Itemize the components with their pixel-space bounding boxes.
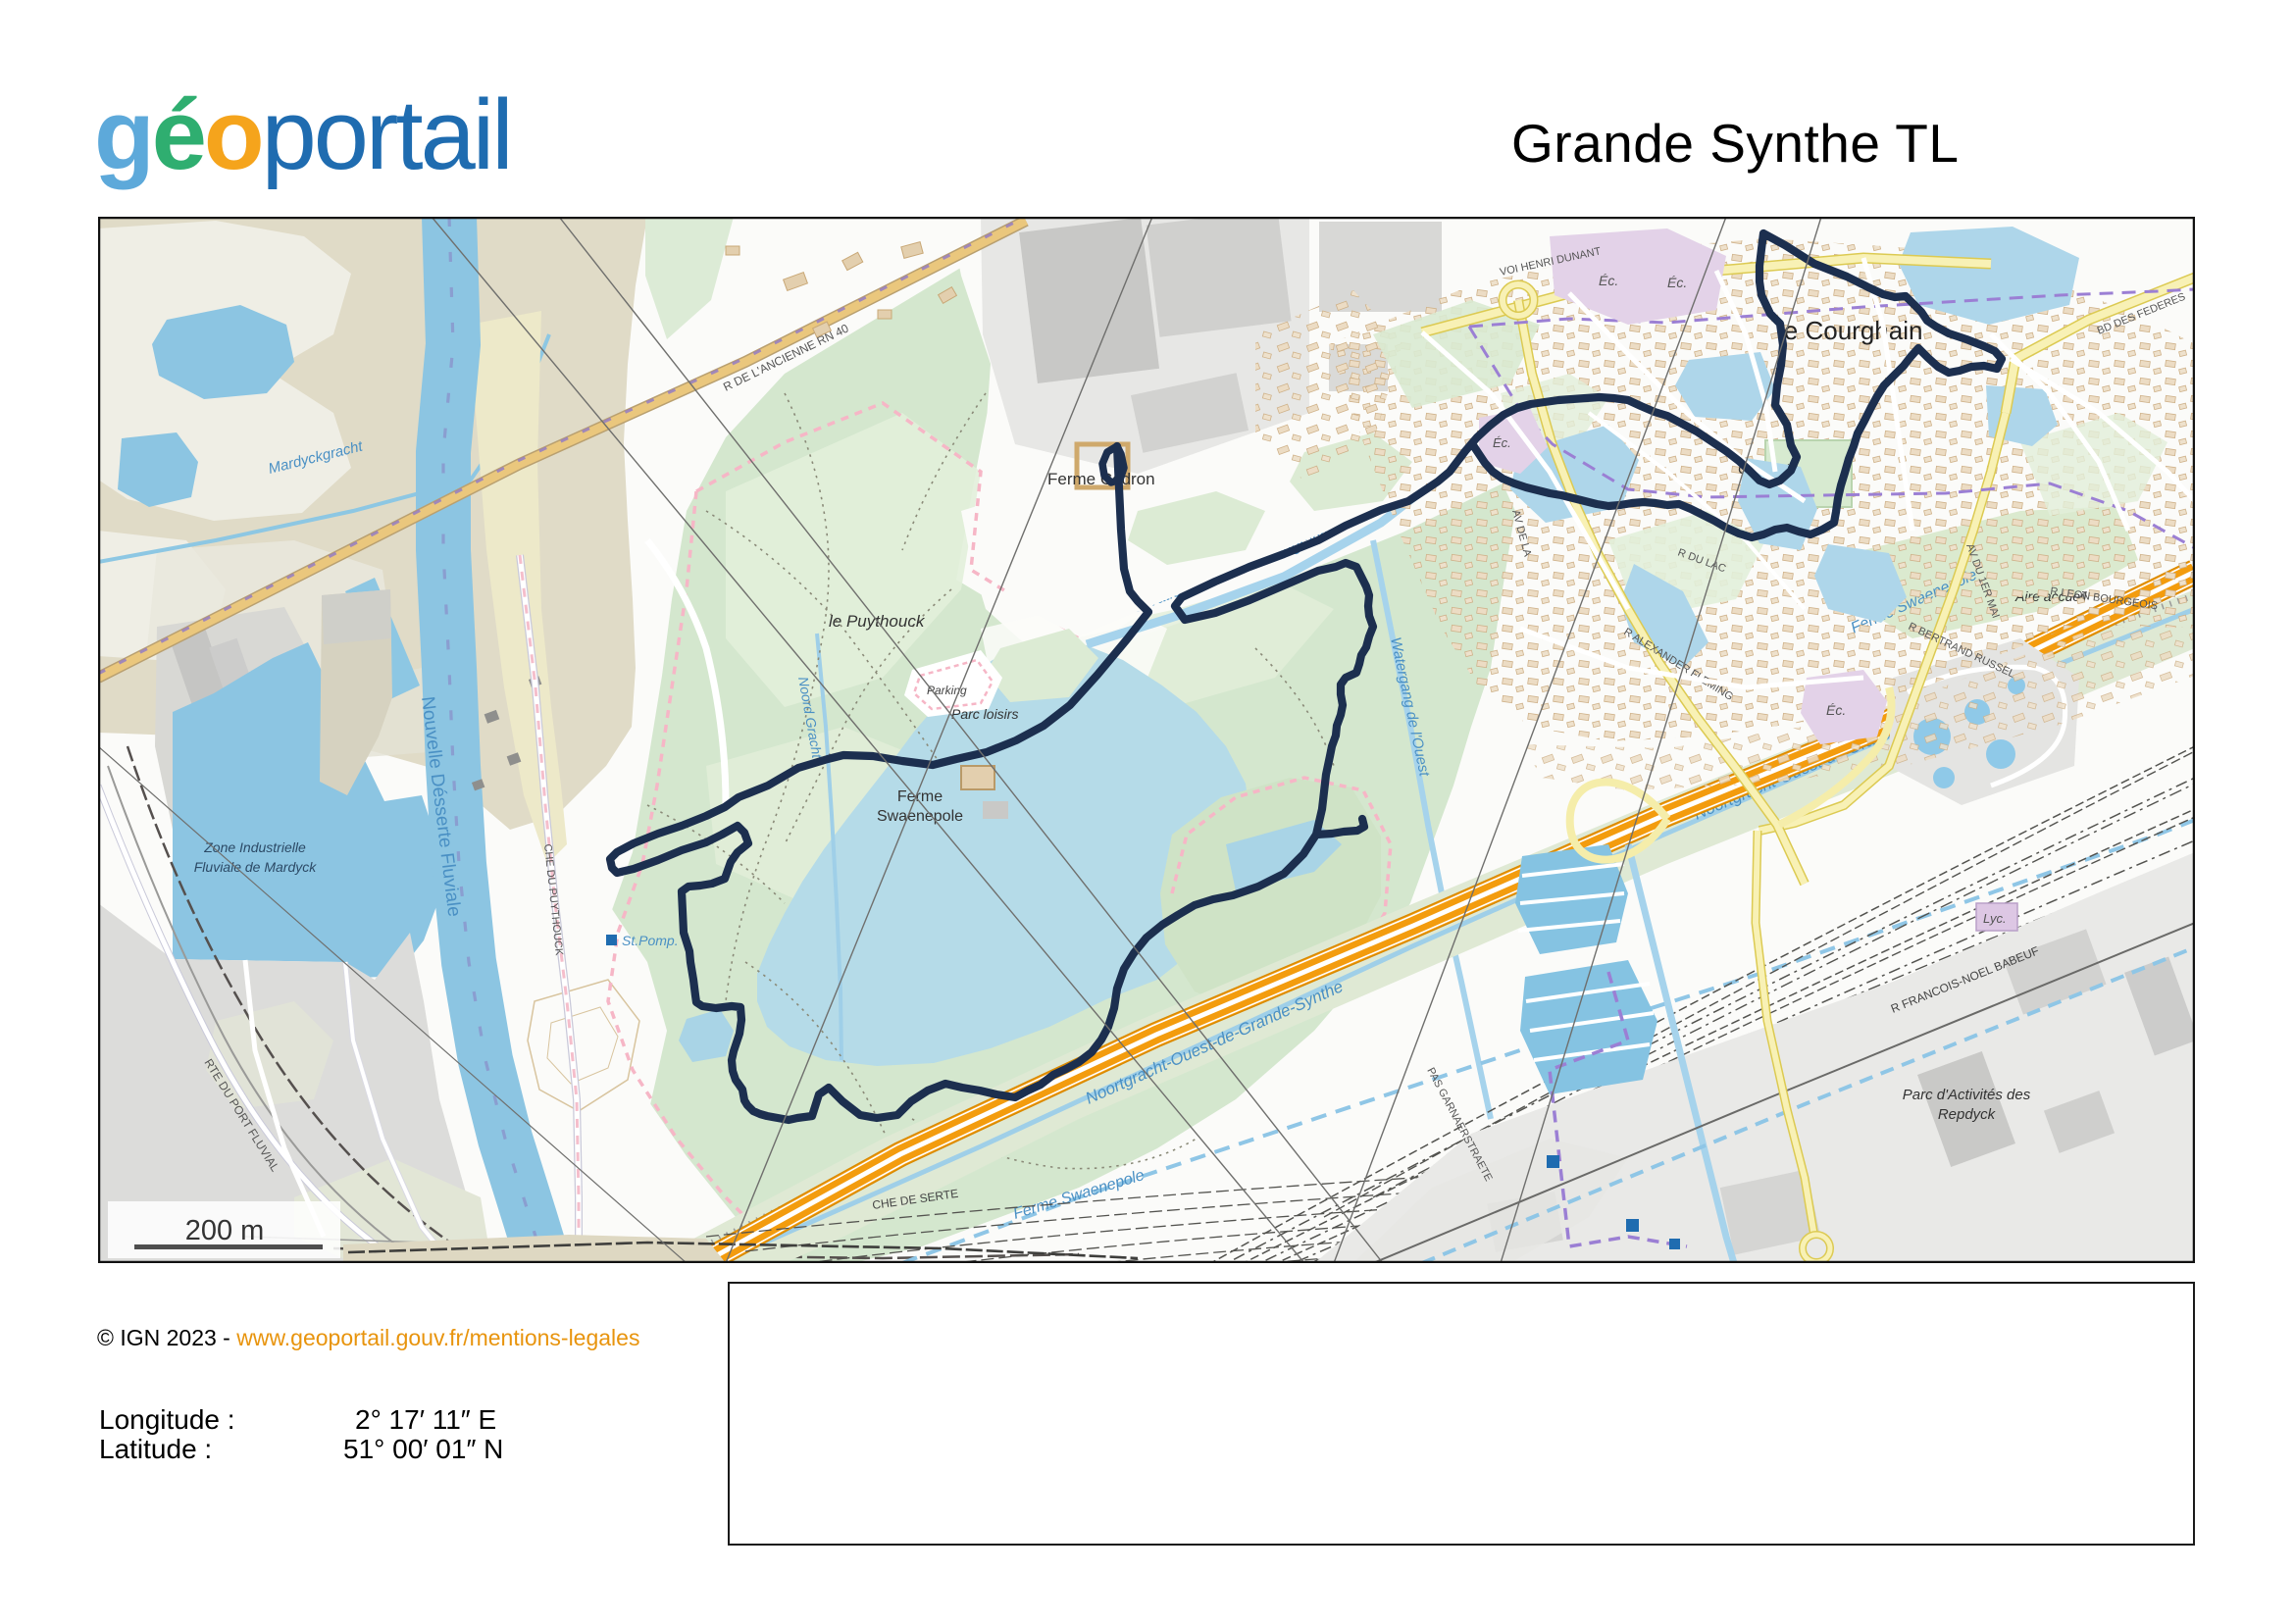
svg-text:le Courghain: le Courghain: [1778, 316, 1922, 345]
svg-text:Lyc.: Lyc.: [1983, 911, 2007, 926]
svg-text:Parc d'Activités des: Parc d'Activités des: [1903, 1087, 2031, 1103]
svg-text:Éc.: Éc.: [1667, 275, 1687, 290]
svg-text:Parc loisirs: Parc loisirs: [951, 706, 1018, 722]
svg-text:200 m: 200 m: [185, 1215, 265, 1246]
svg-text:Éc.: Éc.: [1493, 435, 1511, 450]
svg-text:Swaenepole: Swaenepole: [877, 808, 963, 825]
svg-text:Éc.: Éc.: [1599, 273, 1618, 288]
svg-text:Fluviale de Mardyck: Fluviale de Mardyck: [194, 859, 317, 875]
svg-text:Éc.: Éc.: [1826, 702, 1846, 718]
svg-text:St.Pomp.: St.Pomp.: [622, 933, 679, 948]
svg-text:Repdyck: Repdyck: [1938, 1106, 1997, 1123]
